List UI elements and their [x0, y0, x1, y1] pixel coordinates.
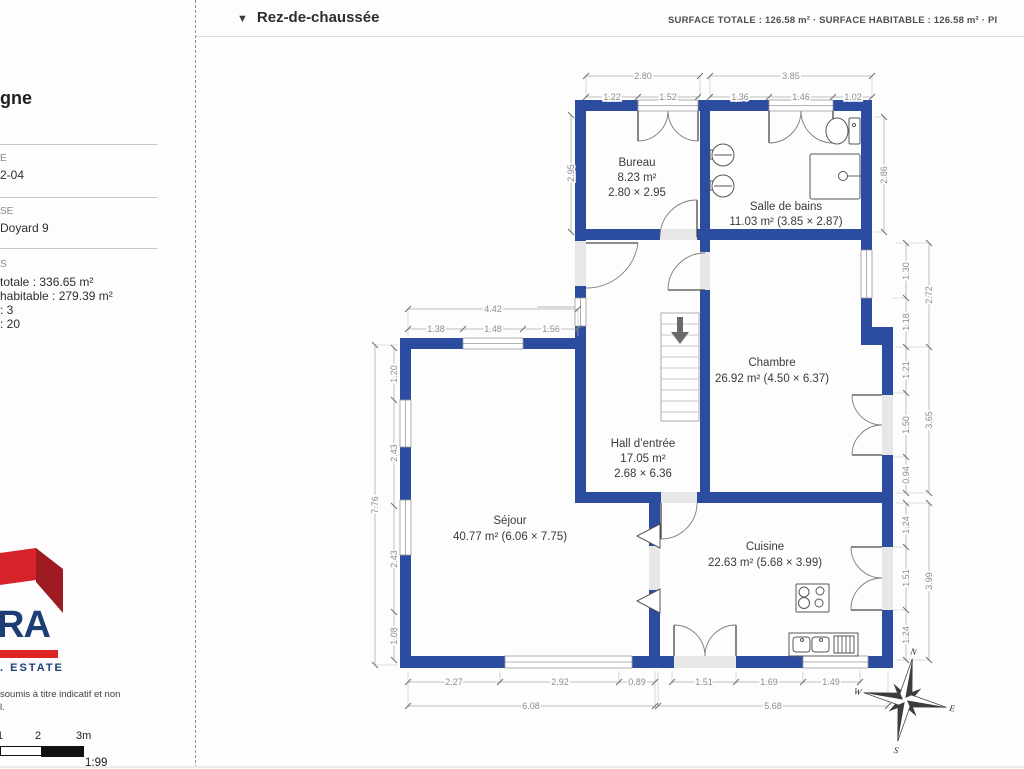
svg-text:Chambre: Chambre: [748, 357, 795, 369]
floor-plan: Bureau 8.23 m² 2.80 × 2.95 Salle de bain…: [0, 0, 1024, 768]
svg-text:Séjour: Séjour: [493, 515, 526, 527]
dimension-label: 1.24: [901, 516, 911, 534]
door-chambre: [668, 252, 710, 290]
window-sejour-left-2: [400, 500, 411, 555]
shower-icon: [810, 154, 861, 199]
dimension-label: 1.52: [659, 92, 677, 102]
dimension-label: 1.48: [484, 324, 502, 334]
svg-text:8.23 m²: 8.23 m²: [618, 172, 657, 184]
svg-text:Salle de bains: Salle de bains: [750, 201, 822, 213]
window-cuisine-bottom: [803, 656, 868, 668]
dimension-label: 2.86: [879, 166, 889, 184]
svg-text:22.63 m² (5.68 × 3.99): 22.63 m² (5.68 × 3.99): [708, 557, 822, 569]
window-chambre-right: [861, 250, 872, 298]
entrance-door: [575, 241, 638, 288]
svg-text:17.05 m²: 17.05 m²: [620, 453, 666, 465]
dimension-label: 1.20: [389, 365, 399, 383]
dimension-label: 1.21: [901, 361, 911, 379]
dimension-label: 0.89: [628, 677, 646, 687]
svg-text:N: N: [909, 646, 919, 657]
room-sejour: Séjour 40.77 m² (6.06 × 7.75): [453, 515, 567, 543]
sink-icon: [710, 144, 734, 197]
window-sejour-top: [463, 338, 523, 349]
svg-text:11.03 m² (3.85 × 2.87): 11.03 m² (3.85 × 2.87): [729, 216, 842, 228]
svg-text:2.68 × 6.36: 2.68 × 6.36: [614, 468, 672, 480]
dimension-label: 3.99: [924, 572, 934, 590]
dimension-label: 1.30: [901, 262, 911, 280]
dimension-label: 1.02: [844, 92, 862, 102]
staircase: [661, 313, 699, 421]
dimension-label: 1.18: [901, 313, 911, 331]
door-cuisine-exterior: [851, 547, 893, 610]
dimension-label: 1.56: [542, 324, 560, 334]
dimension-label: 2.80: [634, 71, 652, 81]
room-labels: Bureau 8.23 m² 2.80 × 2.95 Salle de bain…: [453, 157, 843, 569]
cooktop-icon: [796, 584, 829, 612]
dimension-label: 6.08: [522, 701, 540, 711]
door-bureau: [660, 200, 697, 240]
dimension-label: 2.95: [566, 164, 576, 182]
room-chambre: Chambre 26.92 m² (4.50 × 6.37): [715, 357, 829, 385]
room-bureau: Bureau 8.23 m² 2.80 × 2.95: [608, 157, 666, 199]
door-chambre-exterior: [852, 395, 893, 455]
dimension-label: 1.36: [731, 92, 749, 102]
dimension-label: 1.08: [389, 627, 399, 645]
dimension-label: 4.42: [484, 304, 502, 314]
dimension-label: 1.51: [901, 569, 911, 587]
kitchen-fixtures: [789, 584, 858, 656]
door-cuisine-french: [674, 625, 736, 668]
svg-text:E: E: [948, 703, 957, 714]
dimension-label: 3.85: [782, 71, 800, 81]
dimension-label: 2.92: [551, 677, 569, 687]
svg-text:2.80 × 2.95: 2.80 × 2.95: [608, 187, 666, 199]
room-salle-de-bains: Salle de bains 11.03 m² (3.85 × 2.87): [729, 201, 842, 228]
dimension-label: 2.72: [924, 286, 934, 304]
window-sejour-left-1: [400, 400, 411, 447]
window-bureau-top: [638, 100, 698, 141]
dimension-label: 1.46: [792, 92, 810, 102]
opening-sejour-cuisine: [637, 524, 660, 613]
doors: [575, 200, 893, 668]
dimension-label: 2.43: [389, 444, 399, 462]
dimension-label: 2.43: [389, 550, 399, 568]
dimension-label: 1.24: [901, 626, 911, 644]
window-sdb-top: [769, 100, 833, 143]
window-sejour-bottom: [505, 656, 632, 668]
room-cuisine: Cuisine 22.63 m² (5.68 × 3.99): [708, 541, 822, 569]
door-cuisine-hall: [661, 492, 697, 539]
svg-text:26.92 m² (4.50 × 6.37): 26.92 m² (4.50 × 6.37): [715, 373, 829, 385]
svg-text:Cuisine: Cuisine: [746, 541, 784, 553]
kitchen-sink-icon: [789, 633, 858, 656]
window-entry-sidelight: [537, 298, 586, 326]
svg-text:Bureau: Bureau: [618, 157, 655, 169]
room-hall: Hall d’entrée 17.05 m² 2.68 × 6.36: [611, 438, 676, 480]
svg-text:S: S: [893, 745, 900, 756]
dimension-label: 7.76: [370, 496, 380, 514]
dimension-label: 1.22: [603, 92, 621, 102]
svg-text:40.77 m² (6.06 × 7.75): 40.77 m² (6.06 × 7.75): [453, 531, 567, 543]
dimension-label: 0.94: [901, 466, 911, 484]
bathroom-fixtures: [710, 118, 861, 199]
dimension-label: 1.69: [760, 677, 778, 687]
dimension-label: 1.51: [695, 677, 713, 687]
svg-text:W: W: [853, 686, 864, 697]
svg-text:Hall d’entrée: Hall d’entrée: [611, 438, 676, 450]
dimension-label: 1.49: [822, 677, 840, 687]
dimension-label: 5.68: [764, 701, 782, 711]
dimension-label: 3.65: [924, 411, 934, 429]
dimension-label: 1.50: [901, 416, 911, 434]
dimension-label: 1.38: [427, 324, 445, 334]
toilet-icon: [826, 118, 860, 144]
dimension-label: 2.27: [445, 677, 463, 687]
